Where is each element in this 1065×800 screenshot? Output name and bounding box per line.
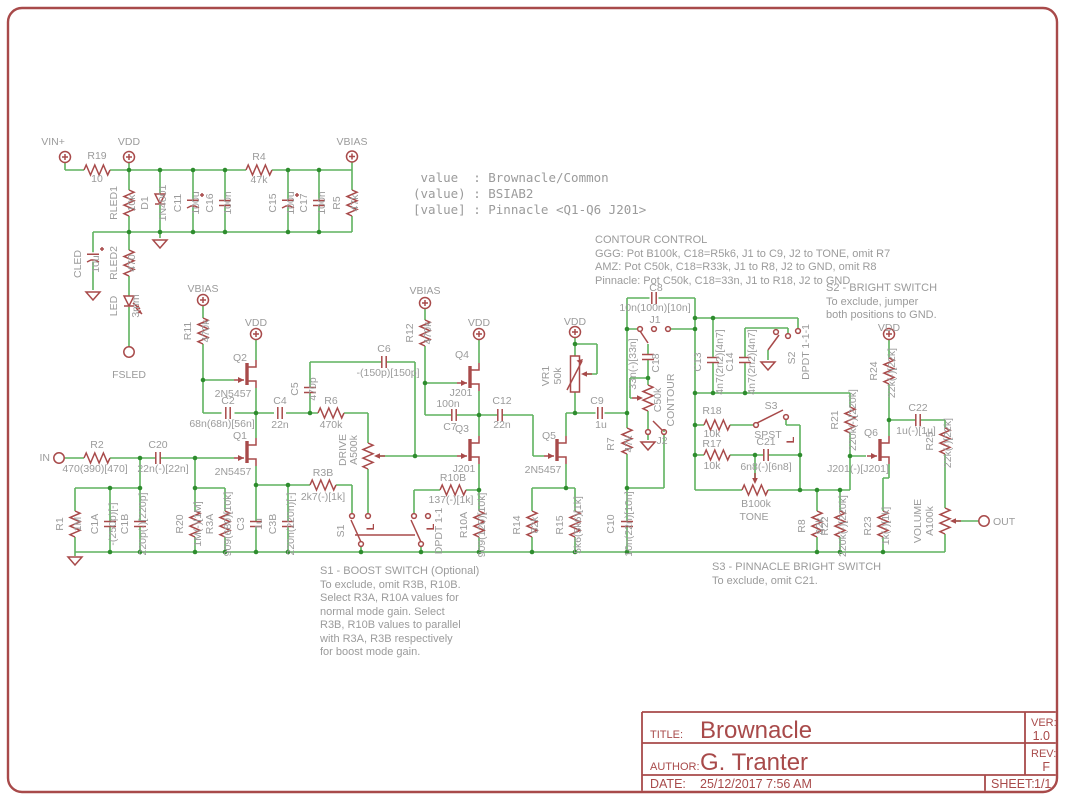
resistor-r2 [84,453,110,463]
component-label: D1 [139,196,151,210]
supply-vdd-q4 [474,329,485,340]
component-label: 1u [595,419,607,431]
component-label: VBIAS [410,285,441,297]
component-label: R7 [605,437,617,451]
component-label: 470 [126,254,138,272]
switch-s3 [754,410,789,427]
component-label: R6 [324,395,338,407]
component-label: A100k [924,505,936,536]
component-label: R18 [702,405,721,417]
component-label: Q6 [864,427,878,439]
component-label: C10 [605,514,617,533]
switch-s1 [350,514,431,547]
component-label: C16 [204,193,216,212]
component-label: DPDT 1-1-1 [800,324,812,380]
rev-value: F [1042,760,1050,774]
component-label: 470(390)[470] [62,463,127,475]
sheet-value: 1/1 [1034,777,1051,791]
transistor-q6 [867,436,889,464]
transistor-q2 [234,360,256,388]
component-label: VBIAS [337,136,368,148]
component-label: 22k(-)[22k] [942,418,954,468]
supply-vbias-1 [347,151,358,162]
resistor-r17 [704,450,730,460]
value-note: value : Brownacle/Common (value) : BSIAB… [413,170,646,218]
pad-fsled [124,347,134,357]
gnd-top [153,240,167,248]
component-label: J2 [656,435,667,447]
component-label: FSLED [112,369,146,381]
component-label: 100u [190,191,202,215]
component-label: RLED2 [108,246,120,280]
s1-note: S1 - BOOST SWITCH (Optional) To exclude,… [320,565,479,660]
author-label: AUTHOR: [650,761,700,773]
resistor-r6 [318,408,344,418]
component-label: 220k(-)[220k] [847,389,859,451]
component-label: 10k [126,194,138,212]
supply-vin [60,152,71,163]
trimmer-vr1 [567,356,583,392]
component-label: C3B [267,514,279,534]
capacitor-c21 [764,449,768,461]
component-label: L [785,436,797,443]
gnd-bottom-rail [68,557,82,565]
capacitor-c9 [598,407,602,419]
component-label: 2N5457 [525,464,562,476]
component-label: C15 [267,193,279,212]
schematic-page: VIN+R1910VDDVBIASRLED110kD11N4001C11100u… [0,0,1065,800]
component-label: 2k7(-)[1k] [301,491,345,503]
component-label: C1A [89,514,101,534]
component-label: R19 [87,150,106,162]
component-label: CLED [72,250,84,278]
component-label: VDD [118,136,141,148]
component-label: 909(680)[10k] [222,492,234,557]
component-label: 470k [320,419,344,431]
ver-value: 1.0 [1033,729,1050,743]
title-label: TITLE: [650,729,683,741]
component-label: R1 [54,517,66,531]
component-label: 1M [72,517,84,532]
jumper-j1 [638,327,671,343]
schematic-title: Brownacle [700,717,812,744]
component-label: R20 [174,514,186,533]
component-label: 22n(-)[22n] [137,463,188,475]
component-label: 10 [91,173,103,185]
component-label: R3A [204,514,216,534]
component-label: OUT [993,516,1016,528]
component-label: -(150p)[150p] [356,367,419,379]
component-label: TONE [740,511,769,523]
component-label: 470k [422,321,434,345]
drive-wiper-arrow [374,453,385,459]
component-label: J201(-)[J201] [827,463,889,475]
capacitor-c4 [278,407,282,419]
supply-vbias-2 [198,295,209,306]
component-label: 10n(100n)[10n] [619,302,690,314]
component-label: 47k [251,174,269,186]
component-label: 1k(-)[1k] [880,507,892,546]
switch-s2 [768,329,800,350]
component-label: A500k [348,434,360,465]
component-label: 5k6(5k6)[1k] [572,496,584,554]
contour-note: CONTOUR CONTROL GGG: Pot B100k, C18=R5k6… [595,234,890,288]
component-label: 3mm [130,294,142,318]
component-label: R15 [554,515,566,534]
component-label: VR1 [540,366,552,387]
component-label: R3B [313,467,333,479]
component-label: C18 [650,353,662,372]
component-label: 220p(-)[220p] [137,492,149,555]
component-label: R23 [862,516,874,535]
component-label: C17 [298,193,310,212]
component-label: R17 [702,438,721,450]
component-label: 50k [552,367,564,385]
component-label: 137(-)[1k] [429,494,474,506]
volume-wiper-arrow [950,518,961,524]
component-label: 6n8(-)[6n8] [740,461,791,473]
component-label: 10n(22n)[10n] [623,491,635,556]
resistor-r3b [310,480,336,490]
rev-label: REV: [1031,748,1056,760]
supply-vbias-3 [420,298,431,309]
component-label: 909(120)[10k] [476,493,488,558]
potentiometer-volume [940,508,950,534]
transistor-q3 [457,436,479,464]
component-label: 100n [436,398,460,410]
page-frame [8,8,1057,792]
supply-vdd-vr1 [570,327,581,338]
component-label: Q4 [455,349,469,361]
component-label: VBIAS [188,283,219,295]
ver-label: VER: [1031,717,1057,729]
component-label: C2 [221,395,235,407]
potentiometer-drive [363,443,373,469]
component-label: VOLUME [912,499,924,543]
component-label: R4 [252,151,266,163]
component-label: 100n [222,191,234,215]
component-label: L [365,523,377,530]
transistor-q1 [234,438,256,466]
component-label: S1 [335,524,347,537]
component-label: -(250p)[-] [107,502,119,545]
component-label: 4n7(2n2)[4n7] [746,329,758,394]
vr1-wiper-arrow [581,371,592,377]
component-label: L [425,523,437,530]
component-label: 1N4001 [157,184,169,221]
s2-note: S2 - BRIGHT SWITCH To exclude, jumper bo… [826,282,937,323]
potentiometer-tone [742,485,768,495]
component-label: 10u [90,255,102,273]
component-label: 220n(220n)[-] [285,492,297,555]
pad-out [979,516,989,526]
component-label: C14 [724,352,736,371]
component-label: Q3 [455,423,469,435]
component-label: Q2 [233,352,247,364]
component-label: VDD [564,316,587,328]
component-label: C22 [908,402,927,414]
component-label: 470k [200,319,212,343]
component-label: C5 [289,382,301,396]
component-label: IN [40,452,51,464]
component-label: J1 [649,314,660,326]
date-value: 25/12/2017 7:56 AM [700,777,812,791]
component-label: B100k [741,498,772,510]
component-label: Q5 [542,430,556,442]
author-value: G. Tranter [700,749,808,776]
contour-wiper-arrow [632,395,643,401]
supply-vdd-1 [124,152,135,163]
component-label: 33n(-)[33n] [627,338,639,389]
gnd-s2 [761,362,775,370]
component-label: R14 [511,515,523,534]
component-label: 100u [285,191,297,215]
gnd-j2 [641,442,655,450]
component-label: R12 [404,323,416,342]
component-label: C6 [377,343,391,355]
component-label: S2 [786,351,798,364]
component-label: R22 [819,516,831,535]
component-label: 22k(-)[22k] [886,348,898,398]
component-label: 82k [529,516,541,534]
component-label: 1M(-)[1M] [192,501,204,547]
component-label: C21 [756,436,775,448]
component-label: 22n [271,419,289,431]
component-label: R8 [796,519,808,533]
component-label: C20 [148,439,167,451]
component-label: R10B [440,472,466,484]
gnd-cled [86,292,100,300]
component-label: 22n [493,419,511,431]
tone-wiper-arrow [752,473,758,484]
component-label: R25 [924,431,936,450]
component-label: VDD [468,317,491,329]
sheet-label: SHEET: [991,777,1035,791]
component-label: R24 [868,361,880,380]
component-label: VIN+ [41,136,65,148]
pad-in [54,453,64,463]
component-label: 10k [704,460,722,472]
component-label: 220k(-)[220k] [837,495,849,557]
component-label: S3 [765,400,778,412]
component-label: VDD [245,317,268,329]
component-label: R2 [90,439,104,451]
component-label: RLED1 [108,186,120,220]
component-label: C13 [692,352,704,371]
component-label: 470p [307,377,319,401]
component-label: 47k [623,435,635,453]
component-label: LED [108,295,120,316]
component-label: R11 [182,322,194,341]
schematic-canvas: VIN+R1910VDDVBIASRLED110kD11N4001C11100u… [0,0,1065,800]
component-label: C11 [172,194,184,213]
component-label: C50k [652,387,664,412]
component-label: 1u [253,518,265,530]
component-label: Q1 [233,430,247,442]
component-label: R21 [829,410,841,429]
title-block: TITLE: Brownacle VER: 1.0 AUTHOR: G. Tra… [642,712,1057,791]
component-label: 68n(68n)[56n] [189,418,254,430]
component-label: R5 [331,196,343,210]
component-label: C9 [590,395,604,407]
s3-note: S3 - PINNACLE BRIGHT SWITCH To exclude, … [712,561,881,588]
component-label: C12 [492,395,511,407]
component-label: 47k [349,194,361,212]
component-label: 100n [316,191,328,215]
component-label: 2N5457 [215,466,252,478]
component-label: C4 [273,395,287,407]
component-label: C3 [235,517,247,531]
supply-vdd-q2 [251,329,262,340]
component-label: C1B [119,514,131,534]
date-label: DATE: [650,777,686,791]
component-label: R10A [458,512,470,538]
component-label: VDD [878,322,901,334]
component-label: CONTOUR [665,373,677,426]
capacitor-c7 [452,409,456,421]
